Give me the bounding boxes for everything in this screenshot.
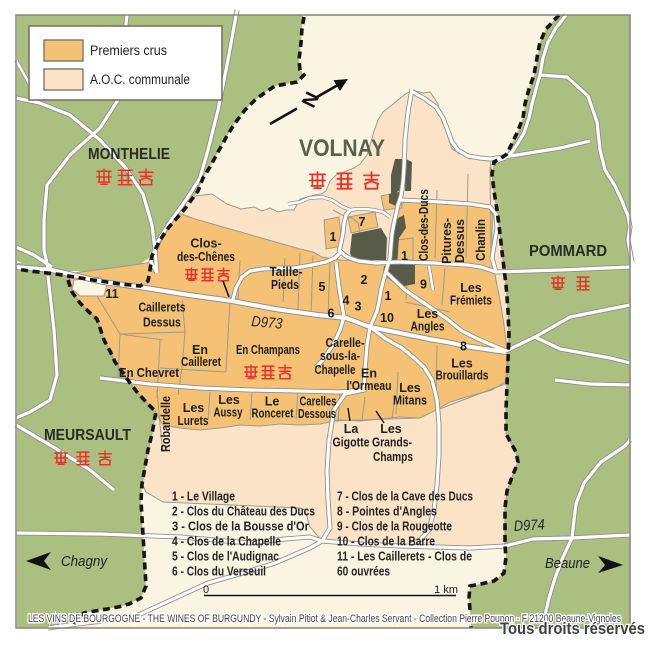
svg-text:1 - Le Village: 1 - Le Village	[172, 490, 235, 504]
svg-text:En Champans: En Champans	[236, 343, 300, 357]
svg-text:Dessus: Dessus	[453, 219, 467, 263]
svg-text:2: 2	[361, 273, 368, 287]
svg-text:Premiers crus: Premiers crus	[90, 43, 167, 58]
svg-text:0: 0	[203, 584, 209, 596]
svg-text:8: 8	[460, 340, 467, 354]
svg-text:Robardelle: Robardelle	[159, 396, 173, 452]
svg-text:D974: D974	[513, 516, 545, 535]
svg-text:6 - Clos du Verseuil: 6 - Clos du Verseuil	[172, 565, 266, 579]
svg-text:Aussy: Aussy	[214, 406, 243, 420]
svg-text:Clos-: Clos-	[190, 237, 221, 251]
svg-text:Pitures-: Pitures-	[440, 218, 454, 264]
svg-text:VOLNAY: VOLNAY	[299, 135, 385, 162]
svg-text:3: 3	[355, 300, 362, 314]
svg-text:5: 5	[319, 280, 326, 294]
svg-text:3 - Clos de la Bousse d'Or: 3 - Clos de la Bousse d'Or	[172, 520, 309, 534]
svg-text:A.O.C. communale: A.O.C. communale	[90, 72, 190, 87]
svg-text:1: 1	[385, 289, 392, 303]
svg-text:Frémiets: Frémiets	[450, 294, 492, 308]
svg-text:Beaune: Beaune	[545, 555, 590, 572]
svg-text:D973: D973	[251, 313, 284, 333]
svg-text:Brouillards: Brouillards	[436, 369, 489, 383]
svg-text:1: 1	[330, 230, 337, 244]
svg-text:des-Chênes: des-Chênes	[177, 250, 235, 264]
svg-text:8 - Pointes d'Angles: 8 - Pointes d'Angles	[337, 505, 437, 519]
svg-text:Chanlin: Chanlin	[474, 219, 488, 261]
svg-text:POMMARD: POMMARD	[529, 243, 607, 260]
svg-text:7 - Clos de la Cave des Ducs: 7 - Clos de la Cave des Ducs	[337, 490, 473, 504]
svg-text:sous-la-: sous-la-	[320, 349, 360, 363]
svg-text:Grands-: Grands-	[372, 436, 412, 450]
svg-text:Mitans: Mitans	[393, 394, 427, 408]
svg-text:Les: Les	[380, 422, 402, 436]
svg-text:La: La	[344, 422, 360, 436]
svg-text:Taille-: Taille-	[270, 265, 303, 279]
svg-text:Ronceret: Ronceret	[252, 407, 295, 421]
svg-text:4: 4	[343, 294, 350, 308]
svg-text:60 ouvrées: 60 ouvrées	[337, 565, 390, 579]
svg-text:Tous droits réservés: Tous droits réservés	[500, 619, 645, 638]
svg-text:Pieds: Pieds	[271, 278, 299, 292]
svg-text:2 - Clos du Château des Ducs: 2 - Clos du Château des Ducs	[172, 505, 315, 519]
svg-text:1 km: 1 km	[434, 584, 458, 596]
svg-text:Chapelle: Chapelle	[315, 363, 356, 377]
svg-text:Gigotte: Gigotte	[333, 436, 370, 450]
svg-text:Caillerets: Caillerets	[139, 301, 186, 315]
svg-text:En Chevret: En Chevret	[119, 366, 180, 380]
svg-text:9: 9	[420, 278, 427, 292]
svg-text:l'Ormeau: l'Ormeau	[347, 379, 392, 393]
svg-text:Lurets: Lurets	[178, 414, 209, 428]
svg-text:MEURSAULT: MEURSAULT	[44, 427, 131, 444]
svg-text:Cailleret: Cailleret	[181, 355, 222, 369]
svg-text:Champs: Champs	[373, 450, 413, 464]
svg-text:11 - Les Caillerets - Clos de: 11 - Les Caillerets - Clos de	[337, 550, 472, 564]
svg-text:7: 7	[359, 215, 366, 229]
svg-text:Angles: Angles	[411, 320, 445, 334]
svg-text:9 - Clos de la Rougeotte: 9 - Clos de la Rougeotte	[337, 520, 452, 534]
svg-text:1: 1	[401, 249, 408, 263]
svg-text:Dessous: Dessous	[298, 407, 336, 421]
svg-text:Les: Les	[183, 401, 205, 415]
svg-text:Chagny: Chagny	[61, 553, 108, 570]
svg-text:4 - Clos de la Chapelle: 4 - Clos de la Chapelle	[172, 535, 281, 549]
svg-text:Carelle-: Carelle-	[326, 336, 365, 350]
svg-text:5 - Clos de l'Audignac: 5 - Clos de l'Audignac	[172, 550, 279, 564]
svg-text:6: 6	[328, 307, 335, 321]
svg-text:Clos-des-Ducs: Clos-des-Ducs	[417, 189, 431, 261]
svg-text:10: 10	[380, 311, 394, 325]
svg-text:Dessus: Dessus	[143, 316, 181, 330]
svg-text:MONTHELIE: MONTHELIE	[88, 146, 170, 163]
svg-text:10 - Clos de la Barre: 10 - Clos de la Barre	[337, 535, 435, 549]
svg-text:11: 11	[105, 287, 118, 301]
